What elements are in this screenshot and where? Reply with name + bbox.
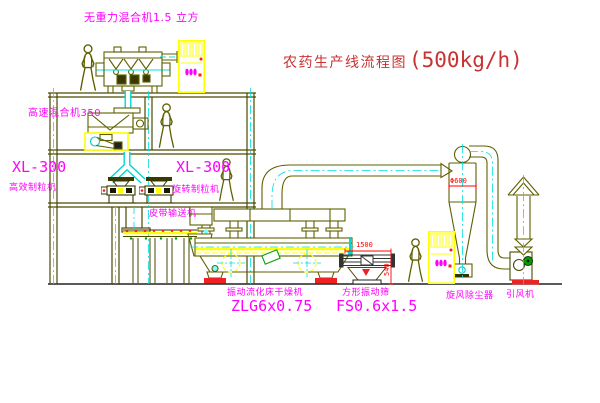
cyclone-separator — [449, 144, 510, 280]
title-capacity: (500kg/h) — [409, 48, 523, 72]
induced-draft-fan — [510, 252, 539, 285]
label-high-speed-mixer: 高速混合机350 — [28, 108, 101, 119]
exhaust-duct — [262, 164, 452, 210]
control-cabinet-upper — [179, 41, 204, 92]
control-cabinet-lower — [429, 232, 454, 283]
diagram-title: 农药生产线流程图 (500kg/h) — [283, 48, 523, 72]
gravity-mixer-machine — [96, 47, 179, 93]
title-text: 农药生产线流程图 — [283, 52, 407, 72]
label-cyclone: 旋风除尘器 — [446, 292, 494, 302]
dim-screen-length: 1500 — [356, 242, 373, 249]
worker-top-floor — [81, 45, 96, 90]
dim-cyclone-diameter: Φ600 — [450, 178, 467, 185]
label-screen-model: FS0.6x1.5 — [336, 299, 417, 314]
flow-diagram: 农药生产线流程图 (500kg/h) 无重力混合机1.5 立方 高速混合机350… — [0, 0, 600, 403]
down-duct — [122, 207, 150, 232]
granulator-left — [101, 177, 136, 203]
label-dryer-model: ZLG6x0.75 — [231, 299, 312, 314]
label-gravity-mixer: 无重力混合机1.5 立方 — [84, 12, 199, 24]
fluid-bed-dryer-machine — [190, 209, 354, 284]
label-fan: 引风机 — [506, 291, 535, 301]
label-granulator-right-model: XL-300 — [176, 160, 230, 175]
label-granulator-left-model: XL-300 — [12, 160, 66, 175]
belt-conveyor-machine — [123, 229, 197, 283]
worker-ground-floor — [409, 239, 423, 281]
worker-second-floor — [159, 104, 173, 147]
granulator-right — [139, 177, 174, 203]
label-belt-conveyor: 皮带输送机 — [149, 210, 197, 220]
label-granulator-right-name: 旋转制粒机 — [172, 186, 220, 196]
dim-screen-height: 540 — [384, 263, 391, 276]
label-granulator-left-name: 高效制粒机 — [9, 184, 57, 194]
